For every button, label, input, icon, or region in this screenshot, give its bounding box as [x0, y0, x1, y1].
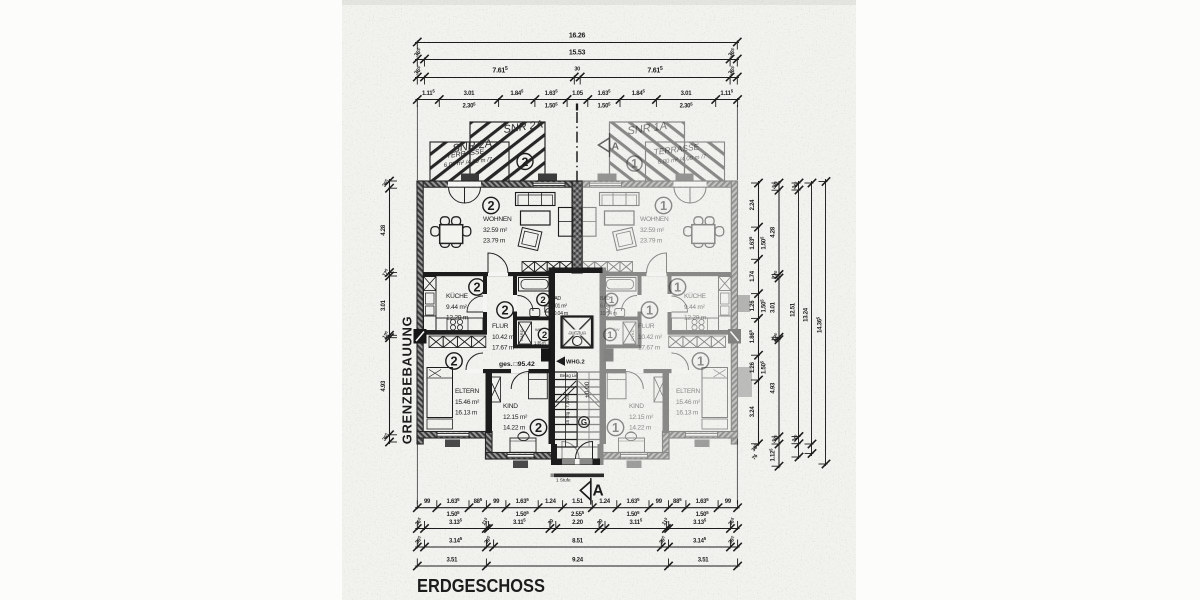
svg-text:1: 1 — [631, 157, 638, 171]
svg-text:12.29 m: 12.29 m — [684, 315, 707, 322]
svg-text:12.29 m: 12.29 m — [446, 315, 469, 322]
svg-text:99: 99 — [493, 499, 500, 505]
svg-text:4.28: 4.28 — [381, 224, 387, 236]
svg-text:1.24: 1.24 — [545, 499, 557, 505]
svg-text:15.46 m²: 15.46 m² — [676, 399, 701, 406]
svg-text:ELTERN: ELTERN — [676, 388, 701, 395]
svg-text:1: 1 — [646, 304, 653, 318]
svg-text:BAD: BAD — [600, 296, 610, 302]
svg-text:6.01 m²: 6.01 m² — [551, 304, 567, 310]
svg-text:1.26: 1.26 — [750, 300, 756, 312]
svg-text:32.59 m²: 32.59 m² — [483, 227, 508, 234]
svg-text:10.42 m²: 10.42 m² — [638, 334, 663, 341]
svg-text:2: 2 — [542, 330, 547, 341]
svg-text:13.24: 13.24 — [804, 307, 810, 322]
svg-text:2: 2 — [501, 304, 508, 318]
svg-text:15.53: 15.53 — [569, 50, 586, 57]
svg-text:GRENZBEBAUUNG: GRENZBEBAUUNG — [400, 316, 415, 444]
svg-text:3.51: 3.51 — [698, 557, 710, 563]
svg-text:1: 1 — [660, 199, 667, 213]
svg-text:1.05: 1.05 — [572, 91, 584, 97]
svg-text:ELTERN: ELTERN — [455, 388, 480, 395]
svg-text:8.51: 8.51 — [572, 538, 584, 544]
svg-text:4.93: 4.93 — [381, 380, 387, 392]
svg-text:9.24: 9.24 — [572, 557, 584, 563]
svg-text:32.59 m²: 32.59 m² — [640, 227, 665, 234]
svg-text:±0.00: ±0.00 — [584, 381, 591, 398]
svg-text:1: 1 — [674, 281, 681, 295]
svg-text:1.74: 1.74 — [750, 270, 756, 282]
svg-text:2: 2 — [540, 295, 545, 306]
svg-text:9.44 m²: 9.44 m² — [684, 304, 706, 311]
svg-text:WHG.2: WHG.2 — [566, 360, 585, 366]
svg-text:3.01: 3.01 — [771, 301, 777, 313]
svg-text:10.42 m²: 10.42 m² — [492, 334, 517, 341]
svg-text:14.22 m: 14.22 m — [629, 425, 652, 432]
svg-text:3.01: 3.01 — [381, 299, 387, 311]
svg-text:14.22 m: 14.22 m — [503, 425, 526, 432]
svg-text:18 Stg 17,5/28: 18 Stg 17,5/28 — [565, 395, 570, 425]
svg-text:4.93: 4.93 — [771, 382, 777, 394]
svg-text:10.04 m: 10.04 m — [600, 311, 617, 317]
svg-text:1.24: 1.24 — [599, 499, 611, 505]
svg-text:30: 30 — [574, 67, 580, 73]
svg-text:1.35 m: 1.35 m — [534, 341, 546, 346]
svg-text:1.51: 1.51 — [572, 499, 584, 505]
svg-text:2: 2 — [487, 199, 494, 213]
svg-text:23.79 m: 23.79 m — [640, 238, 663, 245]
svg-text:ges.□95.42: ges.□95.42 — [499, 361, 535, 368]
svg-text:KIND: KIND — [503, 403, 518, 410]
svg-text:3.01: 3.01 — [464, 91, 476, 97]
svg-text:1.26: 1.26 — [750, 361, 756, 373]
svg-text:2: 2 — [535, 421, 542, 435]
svg-text:A: A — [593, 483, 604, 500]
svg-text:1 Stufe: 1 Stufe — [556, 478, 571, 483]
svg-text:KÜCHE: KÜCHE — [446, 292, 469, 300]
svg-text:10.04 m: 10.04 m — [551, 311, 568, 317]
svg-text:17.67 m: 17.67 m — [638, 345, 661, 352]
svg-text:6.01 m²: 6.01 m² — [600, 304, 616, 310]
svg-text:99: 99 — [725, 499, 732, 505]
svg-text:9.44 m²: 9.44 m² — [446, 304, 468, 311]
svg-text:2.24: 2.24 — [750, 199, 756, 211]
svg-text:2: 2 — [473, 281, 480, 295]
svg-text:2: 2 — [522, 155, 529, 169]
svg-text:FLUR: FLUR — [638, 323, 655, 330]
svg-text:2.20: 2.20 — [572, 520, 584, 526]
svg-text:16.13 m: 16.13 m — [455, 410, 478, 417]
svg-text:23.79 m: 23.79 m — [483, 238, 506, 245]
svg-text:KIND: KIND — [629, 403, 644, 410]
svg-text:1: 1 — [607, 330, 613, 341]
svg-text:KÜCHE: KÜCHE — [684, 292, 707, 300]
svg-text:15.46 m²: 15.46 m² — [455, 399, 480, 406]
svg-text:1: 1 — [612, 421, 619, 435]
svg-text:ERDGESCHOSS: ERDGESCHOSS — [417, 575, 545, 596]
svg-text:16.13 m: 16.13 m — [676, 410, 699, 417]
svg-text:12.15 m²: 12.15 m² — [629, 414, 654, 421]
svg-text:Belag Lie: Belag Lie — [560, 373, 578, 378]
svg-text:12.15 m²: 12.15 m² — [503, 414, 528, 421]
svg-text:17.67 m: 17.67 m — [492, 345, 515, 352]
svg-text:BAD: BAD — [551, 296, 561, 302]
svg-text:99: 99 — [424, 499, 431, 505]
svg-text:12.51: 12.51 — [791, 302, 797, 317]
svg-text:A: A — [612, 141, 620, 153]
svg-text:3.24: 3.24 — [750, 406, 756, 418]
svg-text:2: 2 — [450, 355, 457, 369]
svg-text:GARD: GARD — [519, 329, 524, 341]
svg-text:1: 1 — [697, 355, 704, 369]
svg-text:16.26: 16.26 — [569, 33, 586, 40]
svg-text:4.28: 4.28 — [771, 226, 777, 238]
svg-text:3.01: 3.01 — [681, 91, 693, 97]
svg-text:WOHNEN: WOHNEN — [483, 216, 512, 223]
svg-text:FLUR: FLUR — [492, 323, 509, 330]
svg-text:3.51: 3.51 — [447, 557, 459, 563]
svg-text:G: G — [581, 418, 587, 427]
svg-text:99: 99 — [656, 499, 663, 505]
svg-text:WOHNEN: WOHNEN — [640, 216, 669, 223]
